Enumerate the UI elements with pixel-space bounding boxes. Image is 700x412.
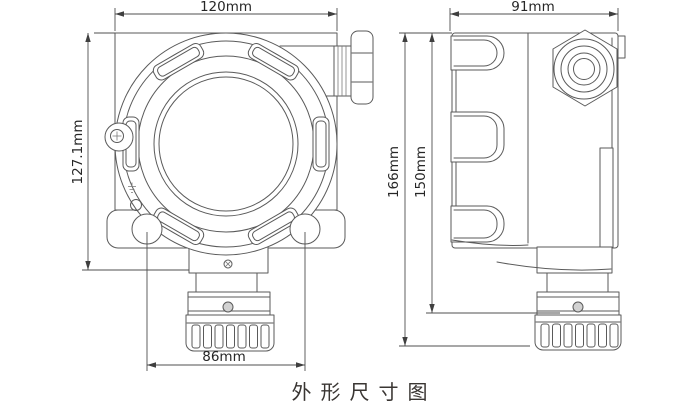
side-sensor-cap <box>535 315 621 350</box>
side-mounting-plate-edge <box>600 148 613 248</box>
front-view <box>105 31 373 351</box>
dim-label-side-height-overall: 166mm <box>386 146 402 198</box>
side-bezel-tabs <box>451 36 504 242</box>
side-top-step <box>618 36 625 58</box>
side-band-screw <box>573 302 583 312</box>
band-screw <box>223 302 233 312</box>
dim-label-front-width: 120mm <box>200 0 252 15</box>
outline-dimension-drawing: 120mm 127.1mm 86mm 91mm <box>0 0 700 412</box>
drawing-title: 外形尺寸图 <box>292 380 437 404</box>
dim-label-front-height: 127.1mm <box>70 120 86 185</box>
dim-label-hole-spacing: 86mm <box>202 349 245 365</box>
conduit-threads <box>334 46 351 96</box>
dim-front-width: 120mm <box>115 0 337 31</box>
hinge-lug <box>105 123 133 151</box>
dim-label-side-height-to-cap: 150mm <box>413 146 429 198</box>
dim-side-width: 91mm <box>450 0 618 31</box>
hex-plug-side <box>351 31 373 104</box>
drawing-canvas: 120mm 127.1mm 86mm 91mm <box>0 0 700 412</box>
dim-label-side-width: 91mm <box>511 0 554 15</box>
side-sensor-cylinder <box>547 273 608 292</box>
side-view <box>451 30 625 350</box>
front-sensor-cylinder <box>196 273 257 292</box>
